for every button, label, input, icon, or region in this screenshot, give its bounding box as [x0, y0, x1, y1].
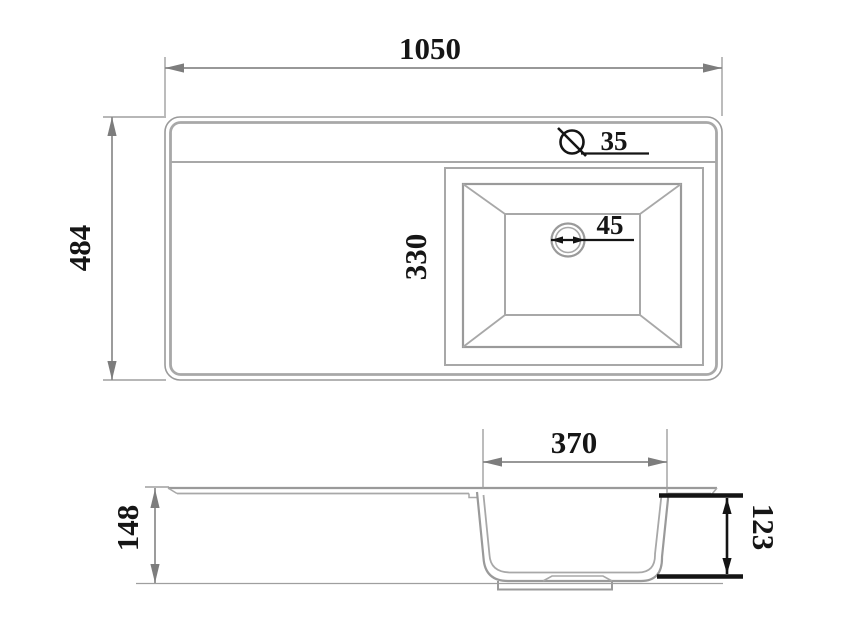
basin-diagonal-tr: [640, 184, 681, 214]
dimension-bowl-depth-123: 123: [657, 496, 781, 577]
bowl-length-label: 330: [398, 234, 433, 281]
drawing-sheet: 45 35 330 1050 484: [0, 0, 867, 641]
diameter-symbol-slash-icon: [558, 128, 586, 156]
top-view: 45 35 330 1050 484: [62, 31, 722, 380]
dimension-height-148: 148: [110, 487, 169, 583]
drain-diameter-label: 45: [597, 210, 624, 240]
dimension-bowl-width-370: 370: [483, 425, 667, 495]
top-view-sink-outline-inner: [171, 123, 717, 375]
top-view-basin-corner-diagonals: [463, 184, 681, 347]
side-bowl-outer-wall: [477, 492, 669, 581]
bowl-width-arrow-right-icon: [648, 457, 667, 466]
bowl-depth-label: 123: [746, 504, 781, 551]
dimension-depth-484: 484: [62, 117, 166, 380]
basin-diagonal-br: [640, 315, 681, 347]
side-drain-boss: [498, 581, 612, 590]
top-view-basin-frame: [445, 168, 703, 365]
basin-diagonal-tl: [463, 184, 505, 214]
height-arrow-top-icon: [150, 489, 159, 508]
overall-height-label: 148: [110, 505, 145, 552]
faucet-diameter-label: 35: [601, 126, 628, 156]
height-arrow-bottom-icon: [150, 564, 159, 583]
width-arrow-left-icon: [165, 63, 184, 72]
overall-width-label: 1050: [399, 31, 461, 66]
dimension-faucet-35: 35: [558, 126, 649, 156]
width-arrow-right-icon: [703, 63, 722, 72]
dimension-drain-45: 45: [551, 210, 634, 244]
bowl-width-arrow-left-icon: [483, 457, 502, 466]
top-view-sink-outline-outer: [165, 117, 722, 380]
depth-arrow-bottom-icon: [107, 361, 116, 380]
basin-diagonal-bl: [463, 315, 505, 347]
depth-arrow-top-icon: [107, 117, 116, 136]
bowl-width-label: 370: [551, 425, 598, 460]
side-view: 370 148 123: [110, 425, 781, 590]
sink-drawing-canvas: 45 35 330 1050 484: [0, 0, 867, 641]
side-bowl-inner-wall: [484, 495, 662, 573]
bowl-depth-arrow-top-icon: [722, 498, 731, 514]
bowl-depth-arrow-bottom-icon: [722, 558, 731, 574]
dimension-width-1050: 1050: [165, 31, 722, 116]
overall-depth-label: 484: [62, 225, 97, 272]
